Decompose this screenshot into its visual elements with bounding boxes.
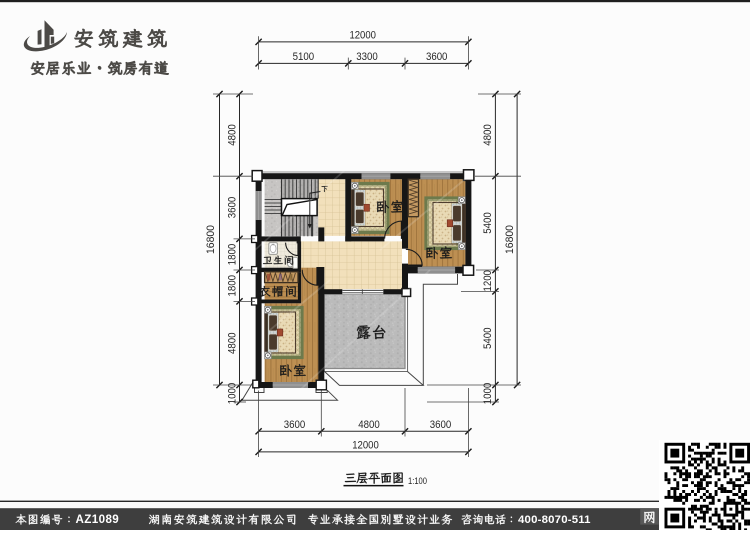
svg-text:5100: 5100 xyxy=(293,51,315,63)
svg-text:5400: 5400 xyxy=(482,327,494,349)
svg-text:5400: 5400 xyxy=(482,212,494,234)
svg-text:1000: 1000 xyxy=(482,383,494,405)
svg-text:3600: 3600 xyxy=(284,419,306,431)
svg-text:1800: 1800 xyxy=(226,275,238,297)
svg-text:16800: 16800 xyxy=(205,225,217,254)
svg-text:16800: 16800 xyxy=(504,225,516,254)
svg-text:12000: 12000 xyxy=(352,440,379,452)
svg-text:1:100: 1:100 xyxy=(408,475,427,486)
svg-text:12000: 12000 xyxy=(349,30,376,42)
svg-text:4800: 4800 xyxy=(358,419,380,431)
svg-text:3600: 3600 xyxy=(430,419,452,431)
svg-text:400-8070-511: 400-8070-511 xyxy=(518,514,591,526)
svg-text:4800: 4800 xyxy=(226,332,238,354)
svg-text:4800: 4800 xyxy=(482,124,494,146)
svg-text:3600: 3600 xyxy=(426,51,448,63)
svg-text:3600: 3600 xyxy=(226,197,238,219)
svg-text:4800: 4800 xyxy=(226,124,238,146)
svg-text:1800: 1800 xyxy=(226,244,238,266)
svg-text:1000: 1000 xyxy=(226,383,238,405)
svg-text:AZ1089: AZ1089 xyxy=(76,513,120,526)
svg-text:1200: 1200 xyxy=(482,270,494,292)
svg-text:3300: 3300 xyxy=(356,51,378,63)
